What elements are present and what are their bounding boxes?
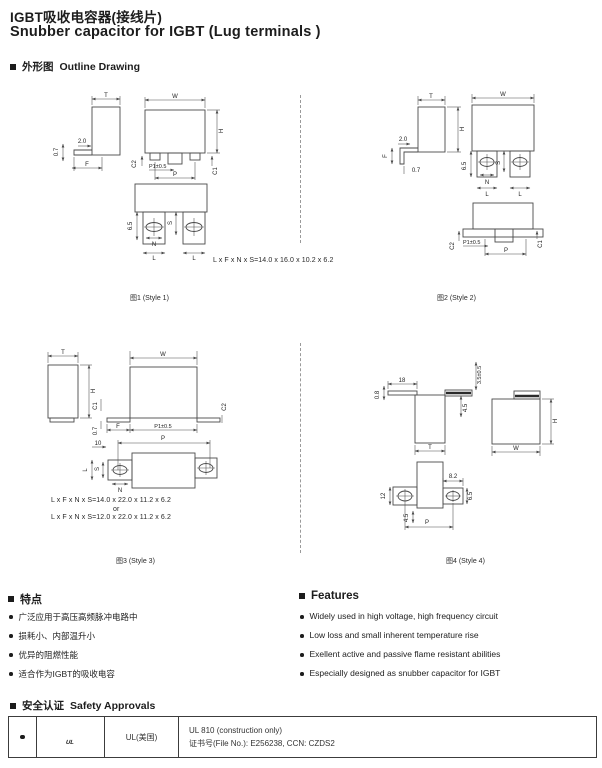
dim-label-P1: P1±0.5 <box>149 164 166 170</box>
feature-text: Exellent active and passive flame resist… <box>310 649 501 659</box>
feature-item: Exellent active and passive flame resist… <box>300 649 500 668</box>
feature-text: 适合作为IGBT的吸收电容 <box>19 668 115 680</box>
dim-label-P1: P1±0.5 <box>154 424 171 430</box>
dim-label-P1: P1±0.5 <box>463 240 480 246</box>
dim-label-W: W <box>500 92 506 98</box>
style3-formula-2: L x F x N x S=12.0 x 22.0 x 11.2 x 6.2 <box>51 514 171 523</box>
dim-label-H: H <box>219 129 225 133</box>
style3-size-formulas: L x F x N x S=14.0 x 22.0 x 11.2 x 6.2 o… <box>51 497 171 523</box>
ul-logo-icon: UL <box>48 723 94 751</box>
features-zh-header: 特点 <box>8 591 42 607</box>
dim-label-S: S <box>496 161 502 165</box>
dim-label-0.7: 0.7 <box>54 147 60 156</box>
feature-text: Especially designed as snubber capacitor… <box>310 668 501 678</box>
style1-size-formula: L x F x N x S=14.0 x 16.0 x 10.2 x 6.2 <box>213 257 333 264</box>
dim-label-0.7: 0.7 <box>412 168 421 174</box>
features-en-list: Widely used in high voltage, high freque… <box>300 611 500 687</box>
square-bullet-icon <box>8 596 14 602</box>
style1-outline-drawing: T 2.0 0.7 F W H C2 P1±0.5 P C1 <box>30 88 302 300</box>
style3-formula-1: L x F x N x S=14.0 x 22.0 x 11.2 x 6.2 <box>51 497 171 506</box>
features-zh-title: 特点 <box>20 591 42 607</box>
cert-line-1: UL 810 (construction only) <box>189 724 282 737</box>
dim-label-2.0: 2.0 <box>78 139 87 145</box>
dim-label-L: L <box>518 192 522 198</box>
dim-label-18: 18 <box>399 378 406 384</box>
dim-label-L: L <box>485 192 489 198</box>
dim-label-P: P <box>504 248 508 254</box>
dim-label-P: P <box>173 172 177 178</box>
ul-logo-text: UL <box>65 740 74 746</box>
feature-item: Low loss and small inherent temperature … <box>300 630 500 649</box>
dot-bullet-icon <box>300 634 304 638</box>
ul-org-cell: UL(美国) <box>105 717 179 757</box>
dim-label-6.5: 6.5 <box>128 221 134 230</box>
datasheet-page: IGBT吸收电容器(接线片) Snubber capacitor for IGB… <box>0 0 602 768</box>
dim-label-C1: C1 <box>93 402 99 410</box>
safety-section-header: 安全认证 Safety Approvals <box>10 698 155 713</box>
dim-label-6.5: 6.5 <box>468 491 474 500</box>
dot-bullet-icon <box>9 653 13 657</box>
style4-outline-drawing: 18 0.8 3.5±0.5 4.5 T H W 8.2 12 6.5 <box>330 337 602 562</box>
page-title-en: Snubber capacitor for IGBT (Lug terminal… <box>10 24 321 40</box>
dim-label-6.5: 6.5 <box>462 161 468 170</box>
dot-bullet-icon <box>9 672 13 676</box>
dim-label-L: L <box>152 256 156 262</box>
features-en-title: Features <box>311 590 359 602</box>
dim-label-S: S <box>168 221 174 225</box>
dim-label-0.8: 0.8 <box>375 390 381 399</box>
outline-title-zh: 外形图 <box>22 59 54 74</box>
dim-label-C2: C2 <box>450 242 456 250</box>
page-title-zh: IGBT吸收电容器(接线片) <box>10 6 162 26</box>
dim-label-C1: C1 <box>538 240 544 248</box>
feature-item: Especially designed as snubber capacitor… <box>300 668 500 687</box>
dim-label-T: T <box>104 93 108 99</box>
features-zh-list: 广泛应用于高压高频脉冲电路中 损耗小、内部温升小 优异的阻燃性能 适合作为IGB… <box>9 611 138 687</box>
feature-item: 损耗小、内部温升小 <box>9 630 138 649</box>
safety-approvals-table: UL UL(美国) UL 810 (construction only) 证书号… <box>8 716 597 758</box>
dim-label-W: W <box>513 446 519 452</box>
style3-formula-or: or <box>113 506 171 515</box>
dim-label-S: S <box>95 467 101 471</box>
dim-label-L: L <box>192 256 196 262</box>
dim-label-N: N <box>485 180 489 186</box>
dim-label-8.2: 8.2 <box>449 474 458 480</box>
feature-item: 广泛应用于高压高频脉冲电路中 <box>9 611 138 630</box>
dim-label-P: P <box>161 436 165 442</box>
style1-caption: 图1 (Style 1) <box>130 293 169 303</box>
dim-label-F: F <box>383 154 389 158</box>
dim-label-2.0: 2.0 <box>399 137 408 143</box>
dot-bullet-icon <box>300 672 304 676</box>
outline-section-header: 外形图 Outline Drawing <box>10 59 140 74</box>
dim-label-T: T <box>429 94 433 100</box>
approval-row-marker-cell <box>9 717 37 757</box>
dim-label-F: F <box>116 424 120 430</box>
style3-outline-drawing: T H W C1 0.7 F P1±0.5 C2 P 10 <box>30 337 302 562</box>
dim-label-10: 10 <box>95 441 102 447</box>
dim-label-W: W <box>172 94 178 100</box>
style4-caption: 图4 (Style 4) <box>446 556 485 566</box>
dot-bullet-icon <box>300 653 304 657</box>
feature-item: Widely used in high voltage, high freque… <box>300 611 500 630</box>
ul-org-label: UL(美国) <box>126 732 158 743</box>
dim-label-F: F <box>85 162 89 168</box>
dim-label-T: T <box>61 350 65 356</box>
dim-label-3.5: 3.5±0.5 <box>477 366 483 384</box>
ul-cert-cell: UL 810 (construction only) 证书号(File No.)… <box>179 717 596 757</box>
dot-bullet-icon <box>300 615 304 619</box>
dim-label-C2: C2 <box>222 403 228 411</box>
square-bullet-icon <box>10 703 16 709</box>
style2-caption: 图2 (Style 2) <box>437 293 476 303</box>
dot-bullet-icon <box>9 634 13 638</box>
features-en-header: Features <box>299 590 359 602</box>
square-bullet-icon <box>10 64 16 70</box>
feature-item: 适合作为IGBT的吸收电容 <box>9 668 138 687</box>
style2-outline-drawing: T H 2.0 F 0.7 W 6.5 S N L L P1± <box>330 88 602 303</box>
square-bullet-icon <box>299 593 305 599</box>
dim-label-N: N <box>152 242 156 248</box>
dot-bullet-icon <box>20 735 25 740</box>
dot-bullet-icon <box>9 615 13 619</box>
feature-item: 优异的阻燃性能 <box>9 649 138 668</box>
dim-label-C1: C1 <box>213 167 219 175</box>
dim-label-C2: C2 <box>132 160 138 168</box>
dim-label-P: P <box>425 520 429 526</box>
ul-logo-cell: UL <box>37 717 105 757</box>
dim-label-W: W <box>160 352 166 358</box>
dim-label-L: L <box>83 468 89 472</box>
dim-label-H: H <box>91 389 97 393</box>
dim-label-12: 12 <box>381 492 387 499</box>
safety-title-en: Safety Approvals <box>70 700 155 712</box>
dim-label-H: H <box>460 127 466 131</box>
outline-title-en: Outline Drawing <box>60 61 141 73</box>
dim-label-0.7: 0.7 <box>93 426 99 435</box>
dim-label-H: H <box>553 419 559 423</box>
dim-label-4.5: 4.5 <box>463 403 469 412</box>
feature-text: 优异的阻燃性能 <box>19 649 79 661</box>
safety-title-zh: 安全认证 <box>22 698 64 713</box>
dim-label-N: N <box>118 488 122 494</box>
feature-text: 广泛应用于高压高频脉冲电路中 <box>19 611 138 623</box>
feature-text: Low loss and small inherent temperature … <box>310 630 479 640</box>
dim-label-T: T <box>428 445 432 451</box>
feature-text: 损耗小、内部温升小 <box>19 630 96 642</box>
cert-line-2: 证书号(File No.): E256238, CCN: CZDS2 <box>189 737 335 750</box>
feature-text: Widely used in high voltage, high freque… <box>310 611 499 621</box>
style3-caption: 图3 (Style 3) <box>116 556 155 566</box>
